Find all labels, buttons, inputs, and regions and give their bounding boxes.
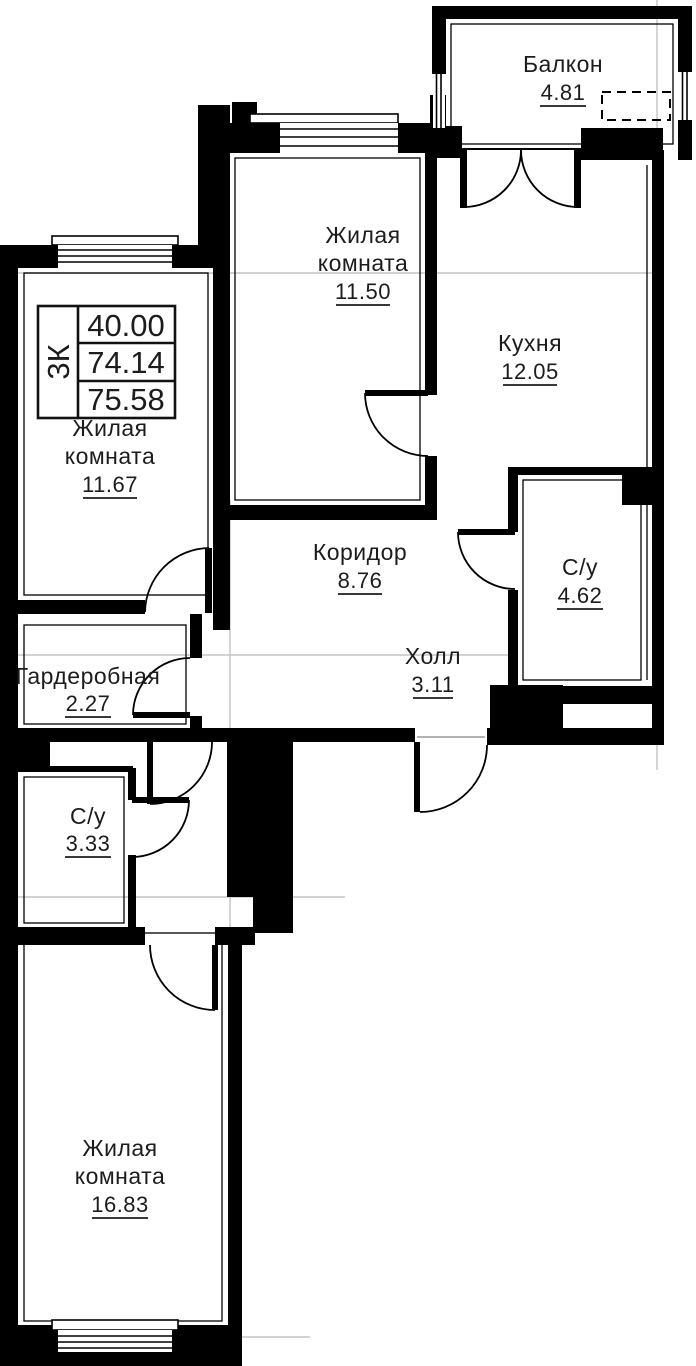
wall-segment	[398, 123, 437, 153]
wall-segment	[190, 614, 202, 658]
area-value-2: 74.14	[87, 345, 165, 380]
wall-segment	[128, 768, 136, 800]
door-leaf	[414, 742, 420, 812]
room-label-living2b: комната	[65, 443, 155, 469]
door-arc	[150, 945, 215, 1010]
door-leaf	[205, 548, 212, 613]
door-leaf	[458, 529, 515, 535]
room-label-living1: Жилая	[325, 222, 400, 248]
door-leaf	[365, 390, 428, 396]
door-leaf	[574, 150, 581, 208]
wall-segment	[0, 927, 145, 945]
door-leaf	[212, 945, 218, 1010]
wall-segment	[432, 6, 446, 74]
room-area-wardrobe: 2.27	[66, 691, 111, 716]
wall-segment	[678, 120, 692, 160]
wall-segment	[622, 467, 652, 505]
wall-segment	[0, 728, 415, 742]
door-arc	[150, 742, 212, 804]
wall-segment	[425, 150, 437, 395]
room-label-hall: Холл	[405, 643, 461, 669]
door-arc	[464, 150, 521, 207]
wall-segment	[508, 467, 518, 532]
door-arc	[145, 548, 209, 612]
wall-segment	[10, 742, 50, 772]
area-value-3: 75.58	[87, 382, 165, 417]
room-label-wardrobe: Гардеробная	[16, 663, 161, 689]
room-area-bath2: 3.33	[66, 831, 111, 856]
door-leaf	[133, 712, 190, 718]
room-label-living3: Жилая	[82, 1135, 157, 1161]
room-area-balcony: 4.81	[541, 80, 586, 105]
wall-segment	[190, 716, 202, 728]
window	[679, 72, 691, 120]
wall-segment	[508, 686, 663, 704]
wall-segment	[45, 766, 133, 772]
door-arc	[420, 745, 487, 812]
window-sill	[52, 236, 178, 245]
room-area-living2: 11.67	[82, 472, 138, 497]
wall-segment	[0, 600, 145, 614]
balcony-dashed-unit	[602, 92, 670, 120]
window-sill	[250, 114, 398, 123]
area-value-1: 40.00	[87, 308, 165, 343]
wall-segment	[0, 245, 18, 1362]
door-arc	[458, 532, 515, 589]
room-label-living3b: комната	[75, 1163, 165, 1189]
wall-segment	[227, 742, 293, 897]
window-sill	[52, 1320, 178, 1330]
room-label-kitchen: Кухня	[498, 330, 562, 356]
room-label-balcony: Балкон	[523, 51, 603, 77]
window	[280, 123, 398, 153]
wall-segment	[487, 728, 663, 745]
apartment-type: 3К	[41, 344, 76, 379]
door-leaf	[147, 742, 153, 804]
window	[433, 74, 445, 128]
room-label-bath1: С/у	[562, 554, 598, 580]
wall-segment	[508, 590, 518, 686]
wall-segment	[253, 897, 293, 933]
room-area-kitchen: 12.05	[501, 359, 559, 384]
wall-segment	[444, 130, 462, 158]
room-area-living3: 16.83	[91, 1192, 149, 1217]
wall-segment	[228, 927, 242, 1362]
door-leaf	[132, 797, 189, 803]
room-area-bath1: 4.62	[558, 583, 603, 608]
door-arc	[365, 393, 428, 456]
wall-segment	[678, 6, 692, 72]
wall-segment	[172, 245, 215, 268]
door-leaf	[460, 150, 467, 208]
summary-table: 3К 40.00 74.14 75.58	[38, 306, 175, 418]
wall-segment	[128, 855, 136, 930]
door-arc	[132, 800, 189, 857]
wall-segment	[432, 6, 692, 19]
room-area-corridor: 8.76	[338, 568, 383, 593]
wall-segment	[652, 150, 664, 745]
wall-segment	[581, 128, 663, 160]
room-area-hall: 3.11	[411, 672, 454, 697]
room-label-corridor: Коридор	[313, 539, 407, 565]
wall-segment	[230, 505, 437, 520]
room-label-bath2: С/у	[70, 803, 106, 829]
door-arc	[521, 150, 578, 207]
wall-segment	[213, 123, 230, 630]
room-area-living1: 11.50	[335, 279, 391, 304]
floor-plan: Балкон 4.81 Жилая комната 11.50 Кухня 12…	[0, 0, 696, 1366]
room-label-living1b: комната	[318, 250, 408, 276]
